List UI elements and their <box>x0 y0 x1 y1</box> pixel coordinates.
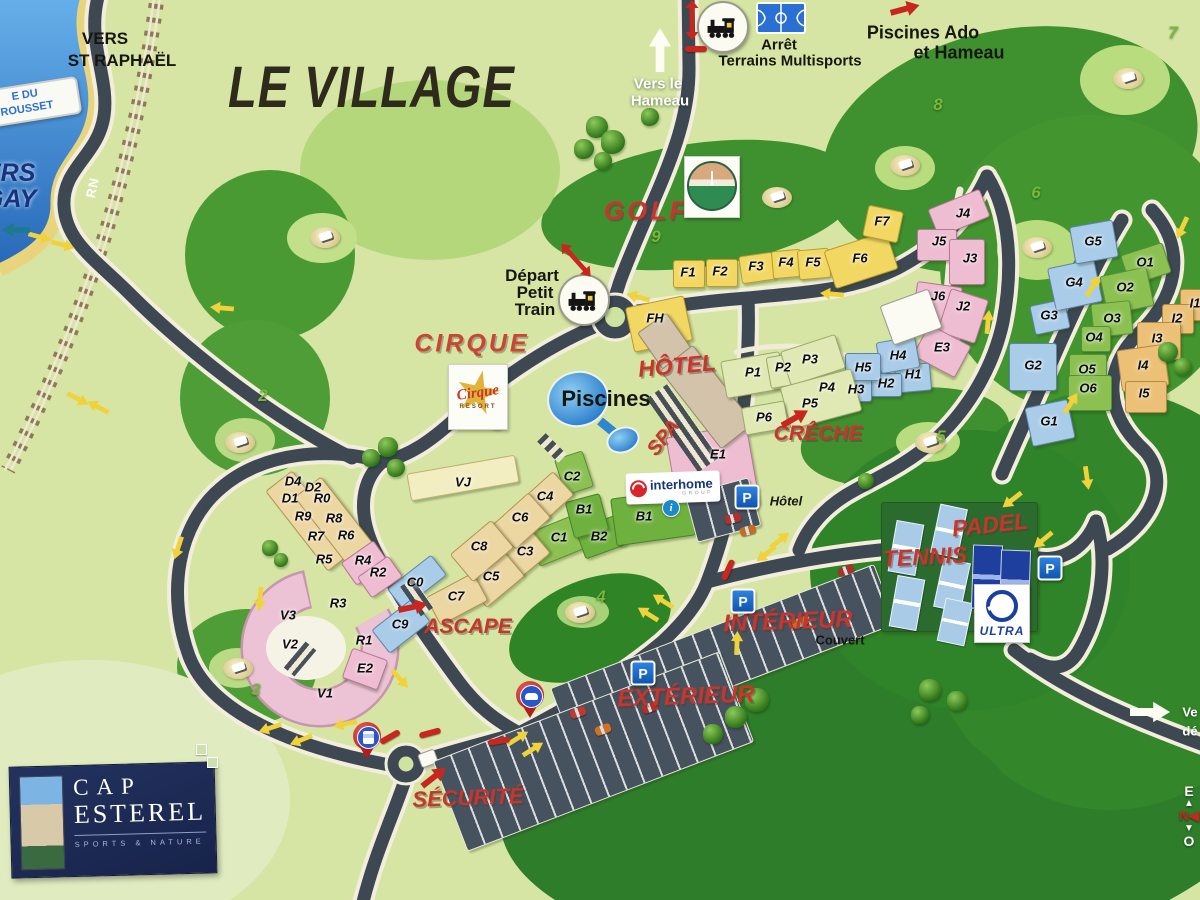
resort-map: F1F2F3F4F5F6F7FHJ2J3J4J5J6E3E1E2H1H2H3H4… <box>0 0 1200 900</box>
golf-hole-number: 4 <box>596 587 605 607</box>
building-label: F1 <box>680 265 695 280</box>
building-label: V1 <box>317 686 333 701</box>
building-label: J2 <box>956 299 970 314</box>
cap-divider <box>74 832 206 836</box>
ultra-name: ULTRA <box>975 624 1029 638</box>
building-label: H3 <box>848 382 865 397</box>
building-label: R8 <box>326 511 343 526</box>
building-label: H1 <box>905 367 922 382</box>
building-label: J3 <box>963 251 977 266</box>
golf-cart-icon <box>565 602 595 623</box>
building-label: I1 <box>1190 296 1200 311</box>
building-label: J6 <box>931 289 945 304</box>
vers-st-raphael-line1: VERS <box>82 29 128 49</box>
building-label: F6 <box>852 251 867 266</box>
building-label: R6 <box>338 528 355 543</box>
building-label: H4 <box>890 348 907 363</box>
golf-cart-icon <box>223 658 253 679</box>
golf-hole-number: 9 <box>651 227 660 247</box>
building-label: H2 <box>878 376 895 391</box>
vers-le-hameau-line2: Hameau <box>631 93 689 110</box>
building-label: E2 <box>357 661 373 676</box>
terrains-multisports-label: Terrains Multisports <box>718 53 861 70</box>
building-label: B1 <box>636 509 653 524</box>
parking-sign: P <box>1038 556 1063 581</box>
building-label: I2 <box>1172 311 1183 326</box>
golf-hole-number: 5 <box>936 427 945 447</box>
cap-tagline: SPORTS & NATURE <box>75 837 207 849</box>
petit-train-depart-icon <box>558 274 610 326</box>
piscines-label: Piscines <box>561 386 650 412</box>
exit-cut-line1: Ve <box>1182 705 1197 720</box>
building-label: C7 <box>448 589 465 604</box>
ultra-logo: ULTRA <box>974 584 1030 643</box>
tennis-label: TENNIS <box>882 541 968 572</box>
building-label: R9 <box>295 509 312 524</box>
building-label: R2 <box>370 565 387 580</box>
building-label: G3 <box>1040 308 1057 323</box>
arret-label: Arrêt <box>761 37 797 54</box>
building-label: I4 <box>1138 358 1149 373</box>
golf-cart-icon <box>310 227 340 248</box>
building-label: C5 <box>483 569 500 584</box>
building-label: D4 <box>285 474 302 489</box>
depart-line3: Train <box>515 300 556 320</box>
building-label: C6 <box>512 510 529 525</box>
cirque-logo-sub: RESORT <box>449 404 507 410</box>
golf-hole-number: 7 <box>1168 23 1177 43</box>
building-label: B2 <box>591 529 608 544</box>
building-label: P6 <box>756 410 772 425</box>
vers-le-hameau-line1: Vers le <box>634 76 682 93</box>
ascape-label: ASCAPE <box>424 615 512 639</box>
building-label: P4 <box>819 380 835 395</box>
building-label: G1 <box>1040 414 1057 429</box>
golf-cart-icon <box>1022 237 1052 258</box>
cirque-resort-logo: Cirque RESORT <box>448 364 508 430</box>
building-label: P3 <box>802 352 818 367</box>
building-label: H5 <box>855 360 872 375</box>
building-label: C1 <box>551 530 568 545</box>
piscines-ado-line2: et Hameau <box>913 43 1004 64</box>
golf-hole-number: 8 <box>933 95 942 115</box>
building-label: F4 <box>778 255 793 270</box>
golf-cart-icon <box>1113 68 1143 89</box>
compass-north: N◀ <box>1172 809 1200 823</box>
cap-esterel-photo <box>19 775 65 870</box>
building-label: V2 <box>282 637 298 652</box>
building-label: I3 <box>1152 331 1163 346</box>
car-glyph <box>525 693 538 700</box>
bus-glyph <box>363 731 374 744</box>
building-label: C3 <box>517 544 534 559</box>
bus-stop-icon <box>353 722 381 760</box>
building-label: O4 <box>1085 330 1102 345</box>
golf-cart-icon <box>762 187 792 208</box>
building-label: C0 <box>407 575 424 590</box>
parking-sign: P <box>631 661 656 686</box>
exterieur-label: EXTÉRIEUR <box>617 681 755 714</box>
car-access-icon <box>516 681 544 719</box>
agay-line1: ERS <box>0 160 64 186</box>
building-label: F3 <box>748 259 763 274</box>
interhome-bird-icon <box>630 480 648 498</box>
building-label: O5 <box>1078 362 1095 377</box>
golf-club-logo <box>684 156 740 218</box>
building-label: O2 <box>1116 280 1133 295</box>
building-label: R0 <box>314 491 331 506</box>
building-label: F5 <box>805 255 820 270</box>
parking-sign: P <box>735 485 760 510</box>
building-label: J4 <box>956 206 970 221</box>
building-label: C2 <box>564 469 581 484</box>
small-sign <box>207 757 218 768</box>
building-label: P1 <box>745 365 761 380</box>
building-label: J5 <box>932 234 946 249</box>
compass-rose: E ▲ N◀ ▼ O <box>1172 784 1200 849</box>
golf-hole-number: 3 <box>251 680 260 700</box>
tree <box>274 553 288 567</box>
building-label: B1 <box>576 502 593 517</box>
building-label: E3 <box>934 340 950 355</box>
cap-line2: ESTEREL <box>74 798 207 830</box>
building-label: C8 <box>471 539 488 554</box>
exit-cut-line2: dé <box>1182 724 1197 739</box>
ultra-ring-icon <box>986 590 1018 622</box>
vers-st-raphael-line2: ST RAPHAËL <box>68 51 177 71</box>
piscines-ado-line1: Piscines Ado <box>867 23 979 44</box>
building-label: R7 <box>308 529 325 544</box>
building-label: C9 <box>392 617 409 632</box>
golf-cart-icon <box>890 155 920 176</box>
golf-cart-icon <box>225 432 255 453</box>
building-label: I5 <box>1139 386 1150 401</box>
info-icon: i <box>662 499 680 517</box>
building-label: G2 <box>1024 358 1041 373</box>
building-label: O3 <box>1103 311 1120 326</box>
building-label: F7 <box>874 214 889 229</box>
building-label: R5 <box>316 552 333 567</box>
vers-agay-label: ERS GAY <box>0 160 64 213</box>
multisport-court-icon <box>756 2 806 39</box>
building-label: P5 <box>802 396 818 411</box>
golf-hole-number: 6 <box>1031 183 1040 203</box>
map-title: LE VILLAGE <box>228 52 515 121</box>
building-label: F2 <box>712 264 727 279</box>
building-label: P2 <box>775 360 791 375</box>
golf-logo-emblem <box>687 161 737 211</box>
building-label: E1 <box>710 447 726 462</box>
golf-hole-number: 2 <box>258 386 267 406</box>
parking-sign: P <box>731 589 756 614</box>
building-label: R3 <box>330 596 347 611</box>
building-label: G4 <box>1065 275 1082 290</box>
building-label: R1 <box>356 633 373 648</box>
building-label: VJ <box>455 475 471 490</box>
building-label: FH <box>646 311 663 326</box>
agay-line2: GAY <box>0 186 64 212</box>
building-label: G5 <box>1084 234 1101 249</box>
road-barrier <box>685 46 707 52</box>
building-label: O6 <box>1079 381 1096 396</box>
building-label: D1 <box>282 491 299 506</box>
tree <box>919 679 941 701</box>
building-label: V3 <box>280 608 296 623</box>
compass-west: O <box>1172 834 1200 849</box>
parking-hotel-label: Hôtel <box>770 494 803 509</box>
securite-label: SÉCURITÉ <box>412 783 524 813</box>
cirque-label: CIRQUE <box>414 330 529 359</box>
small-sign <box>196 744 207 755</box>
building-label: O1 <box>1136 255 1153 270</box>
couvert-label: Couvert <box>815 633 864 648</box>
golf-label: GOLF <box>604 196 688 227</box>
cap-esterel-logo: CAP ESTEREL SPORTS & NATURE <box>9 761 218 878</box>
building-label: C4 <box>537 489 554 504</box>
compass-east: E <box>1172 784 1200 799</box>
